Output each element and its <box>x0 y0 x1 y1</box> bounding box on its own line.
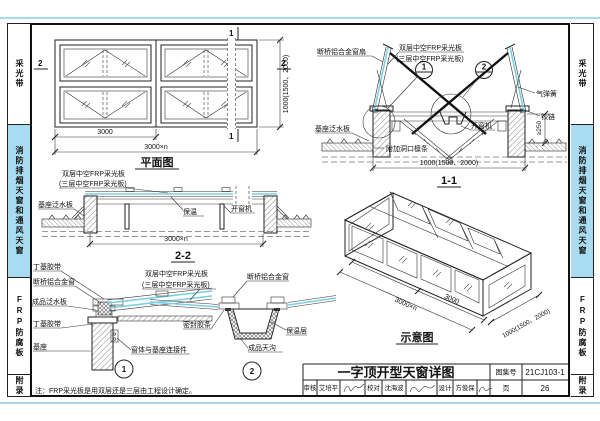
designer-name: 方俊保 <box>455 383 475 392</box>
signature-reviewer <box>344 384 364 392</box>
callout-number: 1 <box>422 63 427 72</box>
section-1-1: 1 2 断桥铝合金窗扇 双层中空FRP采光板 (三层中空FRP采光板) 气弹簧 … <box>315 43 567 187</box>
label-seal: 密封胶条 <box>183 320 211 329</box>
reviewer-name: 艾培平 <box>319 383 339 392</box>
section-1-1-title: 1-1 <box>441 175 457 187</box>
dim-total: 3000×n <box>164 236 188 243</box>
label-insulation: 保温层 <box>286 326 307 335</box>
detail-number: 2 <box>250 367 255 376</box>
base-flashing-plates <box>72 206 289 219</box>
sidebar-tab-daylighting-band: 采光带 <box>571 23 593 125</box>
plan-dimensions: 3000 3000×n 1000(1500、2000) <box>52 37 290 155</box>
ground-right <box>277 215 311 227</box>
detail-number: 1 <box>122 365 127 374</box>
label-panel-double: 双层中空FRP采光板 <box>145 269 208 278</box>
page-rule-top <box>0 17 600 19</box>
panel-assembly <box>85 186 277 208</box>
detail-2-labels: 双层中空FRP采光板 (三层中空FRP采光板) 断桥铝合金窗 密封胶条 保温层 … <box>142 269 307 352</box>
label-window: 断桥铝合金窗 <box>33 277 75 286</box>
sidebar-tab-frp-panel: FRP防腐板 <box>8 278 30 375</box>
sidebar-tab-label: 附录 <box>578 376 586 396</box>
isometric-view: 3000 3000×n 1000(1500、2000) 示意图 <box>337 192 551 344</box>
sidebar-tab-smoke-vent-skylight: 消防排烟天窗和通风天窗 <box>8 125 30 278</box>
page-number: 26 <box>541 384 550 393</box>
label-panel-double: 双层中空FRP采光板 <box>399 43 462 52</box>
drawing-sheet: 采光带 消防排烟天窗和通风天窗 FRP防腐板 附录 采光带 消防排烟天窗和通风天… <box>0 0 600 421</box>
iso-box <box>345 193 531 316</box>
label-butyl-tape: 丁基胶带 <box>33 319 61 328</box>
sidebar-right: 采光带 消防排烟天窗和通风天窗 FRP防腐板 附录 <box>571 23 594 397</box>
sheet-title: 一字顶开型天窗详图 <box>337 365 454 380</box>
label-gas-spring: 气弹簧 <box>536 89 557 98</box>
drawing-frame: 3000 3000×n 1000(1500、2000) 1 1 2 2 平面图 <box>30 23 570 397</box>
break-gap <box>234 186 251 206</box>
section-mark-2: 2 <box>281 59 286 68</box>
iso-dim-width: 1000(1500、2000) <box>501 308 551 340</box>
detail-2-bubble: 2 <box>243 362 261 380</box>
label-gutter: 成品天沟 <box>248 343 276 352</box>
proofer-name: 沈海波 <box>384 383 404 392</box>
section-2-2-dimensions: 3000×n <box>87 234 266 247</box>
dim-min-height: ≥250 <box>536 120 543 135</box>
label-panel-double: 双层中空FRP采光板 <box>62 169 125 178</box>
sidebar-tab-label: FRP防腐板 <box>578 295 586 358</box>
plan-section-marks: 1 1 2 2 <box>34 27 291 142</box>
label-panel-triple: (三层中空FRP采光板) <box>396 54 464 63</box>
iso-title: 示意图 <box>400 330 434 344</box>
plan-view: 3000 3000×n 1000(1500、2000) 1 1 2 2 平面图 <box>34 27 291 169</box>
label-window: 断桥铝合金窗 <box>247 272 289 281</box>
gutter <box>227 309 279 339</box>
sidebar-tab-appendix: 附录 <box>571 375 593 397</box>
label-insulation: 保温 <box>183 207 197 216</box>
label-base-flashing: 基座泛水板 <box>315 124 350 133</box>
label-opener: 开窗机 <box>231 204 252 213</box>
sidebar-tab-label: FRP防腐板 <box>15 295 23 358</box>
section-mark-1: 1 <box>229 29 234 38</box>
roof-right <box>525 139 566 151</box>
plan-dim-bay: 3000 <box>97 129 113 136</box>
label-purlin: 附加洞口檩条 <box>386 144 428 153</box>
callout-number: 2 <box>482 63 487 72</box>
proof-label: 校对 <box>367 383 380 392</box>
title-block: 一字顶开型天窗详图 图集号 21CJ103-1 页 26 审核 艾培平 校对 沈… <box>303 364 568 395</box>
label-flashing: 成品泛水板 <box>32 297 67 306</box>
sidebar-tab-label: 采光带 <box>578 59 586 89</box>
label-base: 基座 <box>33 342 47 351</box>
sidebar-tab-label: 消防排烟天窗和通风天窗 <box>15 146 23 256</box>
detail-1: 丁基胶带 断桥铝合金窗 成品泛水板 丁基胶带 基座 窗体与基座连接件 1 <box>32 262 212 378</box>
iso-panels <box>349 198 525 308</box>
base-right <box>264 196 277 233</box>
plan-dim-total: 3000×n <box>144 144 168 151</box>
atlas-no-label: 图集号 <box>496 368 517 377</box>
sidebar-tab-appendix: 附录 <box>8 375 30 397</box>
dim-opening-width: 1000(1500、2000) <box>420 160 478 167</box>
detail-1-bubble: 1 <box>115 360 133 378</box>
ground-left <box>42 215 84 227</box>
opener-post-right <box>220 204 224 229</box>
section-2-2: 双层中空FRP采光板 (三层中空FRP采光板) 基座泛水板 保温 开窗机 300… <box>38 169 311 262</box>
review-label: 审核 <box>304 383 317 392</box>
label-base-flashing: 基座泛水板 <box>38 200 73 209</box>
sidebar-tab-label: 采光带 <box>15 59 23 89</box>
section-2-2-labels: 双层中空FRP采光板 (三层中空FRP采光板) 基座泛水板 保温 开窗机 <box>38 169 255 216</box>
iso-open-sashes <box>390 192 503 258</box>
sidebar-tab-frp-panel: FRP防腐板 <box>571 278 593 375</box>
label-sash: 断桥铝合金窗扇 <box>317 47 366 56</box>
drawing-canvas: 3000 3000×n 1000(1500、2000) 1 1 2 2 平面图 <box>32 25 568 395</box>
section-2-2-title: 2-2 <box>175 250 191 262</box>
label-panel-triple: (三层中空FRP采光板) <box>59 179 127 188</box>
panel-right <box>288 296 336 308</box>
panel-left <box>150 300 218 310</box>
sidebar-left: 采光带 消防排烟天窗和通风天窗 FRP防腐板 附录 <box>7 23 30 397</box>
page-rule-bottom <box>0 402 600 404</box>
plan-title: 平面图 <box>141 156 174 169</box>
roof-left <box>322 139 373 151</box>
section-mark-1: 1 <box>229 132 234 141</box>
section-mark-2: 2 <box>38 59 43 68</box>
note-text: 注：FRP采光板是用双层还是三层由工程设计确定。 <box>35 386 196 395</box>
label-butyl-tape: 丁基胶带 <box>33 262 61 271</box>
iso-dimensions: 3000 3000×n 1000(1500、2000) <box>337 259 551 340</box>
design-label: 设计 <box>439 383 452 392</box>
label-opener: 开窗机 <box>471 121 492 130</box>
sidebar-tab-daylighting-band: 采光带 <box>8 23 30 125</box>
base-column <box>92 323 113 370</box>
atlas-no-value: 21CJ103-1 <box>525 368 565 377</box>
iso-dim-total: 3000×n <box>393 297 417 313</box>
signature-proofer <box>410 385 435 392</box>
opener-post-left <box>125 204 129 229</box>
label-panel-triple: (三层中空FRP采光板) <box>142 280 210 289</box>
base-left <box>84 196 97 233</box>
sidebar-tab-label: 附录 <box>15 376 23 396</box>
sidebar-tab-smoke-vent-skylight: 消防排烟天窗和通风天窗 <box>571 125 593 278</box>
page-label: 页 <box>503 385 510 393</box>
label-connector: 窗体与基座连接件 <box>131 345 187 354</box>
detail-2: 双层中空FRP采光板 (三层中空FRP采光板) 断桥铝合金窗 密封胶条 保温层 … <box>142 269 336 380</box>
sidebar-tab-label: 消防排烟天窗和通风天窗 <box>578 146 586 256</box>
base-right <box>508 110 525 157</box>
plan-break-line <box>227 38 236 129</box>
iso-dim-bay: 3000 <box>443 293 460 306</box>
